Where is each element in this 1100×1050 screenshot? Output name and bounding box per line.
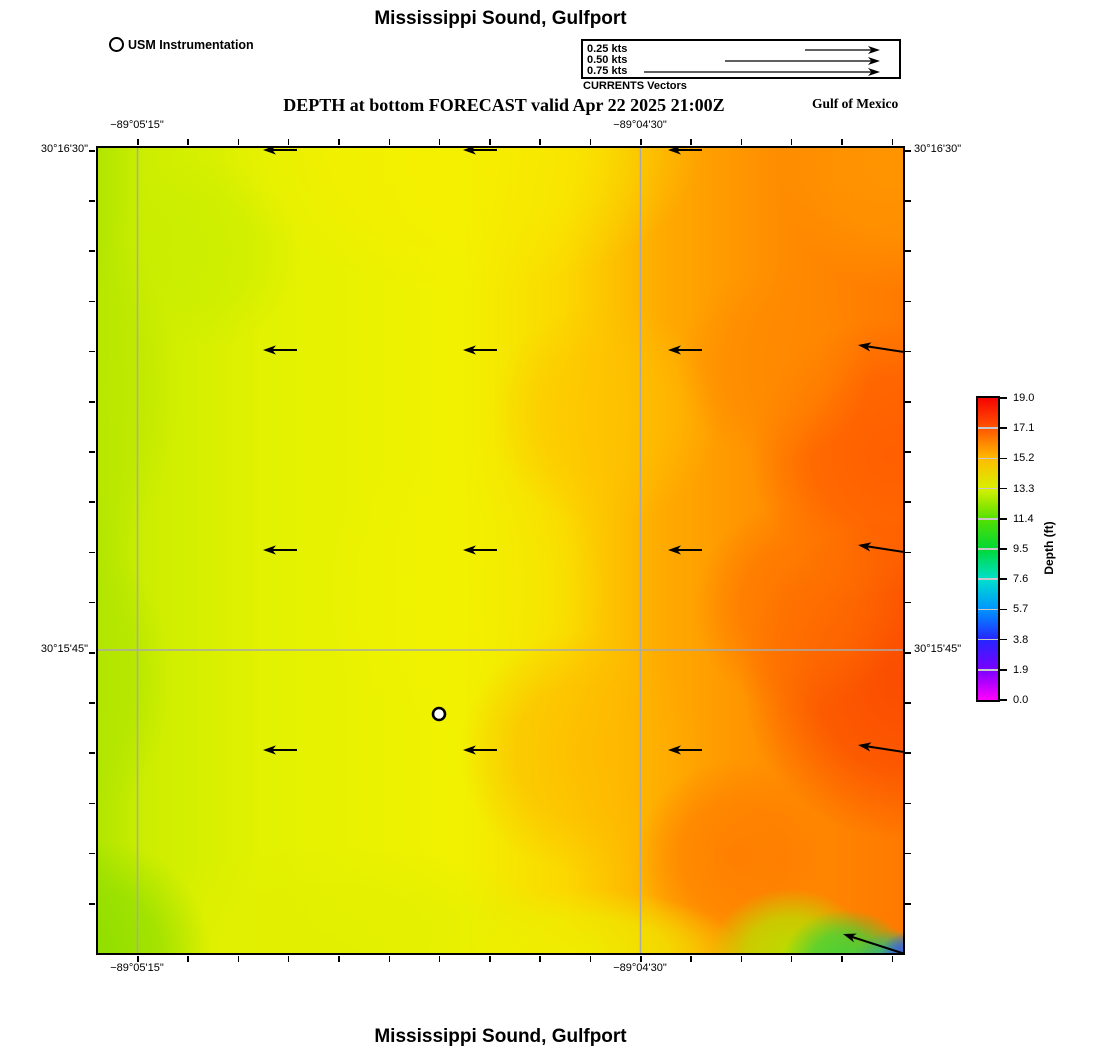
axis-tick	[905, 351, 911, 353]
axis-tick	[389, 139, 391, 145]
axis-tick	[439, 139, 441, 145]
colorbar-tick	[1000, 488, 1007, 490]
colorbar-divider	[978, 548, 998, 550]
map-panel	[96, 146, 905, 955]
colorbar-tick	[1000, 578, 1007, 580]
axis-tick	[905, 803, 911, 805]
axis-tick	[590, 139, 592, 145]
colorbar-title: Depth (ft)	[1042, 503, 1056, 593]
axis-tick	[89, 200, 95, 202]
axis-tick	[690, 956, 692, 962]
colorbar-tick-label: 7.6	[1013, 573, 1028, 585]
axis-tick	[905, 652, 911, 654]
colorbar-tick	[1000, 427, 1007, 429]
colorbar-tick-label: 11.4	[1013, 513, 1034, 525]
axis-label-top-left: −89°05'15"	[97, 119, 177, 131]
axis-label-bottom-left: −89°05'15"	[97, 962, 177, 974]
axis-tick	[338, 139, 340, 145]
axis-label-top-right: −89°04'30"	[600, 119, 680, 131]
station-marker-icon	[109, 37, 124, 52]
axis-tick	[841, 139, 843, 145]
colorbar-divider	[978, 427, 998, 429]
axis-tick	[338, 956, 340, 962]
colorbar-tick	[1000, 609, 1007, 611]
axis-tick	[89, 752, 95, 754]
axis-label-bottom-right: −89°04'30"	[600, 962, 680, 974]
axis-tick	[288, 139, 290, 145]
axis-tick	[89, 803, 95, 805]
axis-tick	[89, 552, 95, 554]
axis-tick	[905, 903, 911, 905]
axis-tick	[89, 250, 95, 252]
axis-tick	[89, 652, 95, 654]
axis-tick	[905, 150, 911, 152]
axis-tick	[137, 956, 139, 962]
axis-tick	[89, 301, 95, 303]
axis-tick	[905, 301, 911, 303]
axis-tick	[238, 139, 240, 145]
station-marker	[433, 708, 445, 720]
axis-tick	[439, 956, 441, 962]
axis-tick	[137, 139, 139, 145]
colorbar-tick-label: 13.3	[1013, 483, 1034, 495]
axis-tick	[905, 752, 911, 754]
colorbar-tick	[1000, 639, 1007, 641]
axis-label-left-top: 30°16'30"	[18, 143, 88, 155]
axis-tick	[187, 956, 189, 962]
axis-tick	[288, 956, 290, 962]
region-label: Gulf of Mexico	[812, 96, 898, 112]
axis-tick	[905, 401, 911, 403]
axis-label-right-top: 30°16'30"	[914, 143, 961, 155]
colorbar-divider	[978, 639, 998, 641]
colorbar-tick-label: 19.0	[1013, 392, 1034, 404]
axis-tick	[892, 139, 894, 145]
colorbar-divider	[978, 458, 998, 460]
colorbar-tick-label: 5.7	[1013, 603, 1028, 615]
axis-tick	[905, 200, 911, 202]
axis-tick	[905, 853, 911, 855]
axis-tick	[89, 401, 95, 403]
axis-tick	[905, 451, 911, 453]
colorbar-tick	[1000, 458, 1007, 460]
footer-title: Mississippi Sound, Gulfport	[98, 1026, 903, 1048]
colorbar-divider	[978, 488, 998, 490]
axis-tick	[905, 501, 911, 503]
axis-tick	[690, 139, 692, 145]
axis-tick	[89, 451, 95, 453]
colorbar-tick	[1000, 548, 1007, 550]
forecast-subtitle: DEPTH at bottom FORECAST valid Apr 22 20…	[98, 95, 910, 116]
axis-label-left-bottom: 30°15'45"	[18, 643, 88, 655]
axis-tick	[89, 702, 95, 704]
axis-tick	[489, 139, 491, 145]
axis-tick	[539, 139, 541, 145]
colorbar-divider	[978, 669, 998, 671]
axis-tick	[640, 956, 642, 962]
colorbar-tick	[1000, 397, 1007, 399]
colorbar-tick-label: 17.1	[1013, 422, 1034, 434]
axis-tick	[741, 956, 743, 962]
colorbar-tick	[1000, 669, 1007, 671]
axis-tick	[89, 150, 95, 152]
axis-tick	[905, 552, 911, 554]
axis-tick	[741, 139, 743, 145]
forecast-figure: Mississippi Sound, Gulfport USM Instrume…	[0, 0, 1100, 1050]
axis-tick	[89, 602, 95, 604]
axis-tick	[590, 956, 592, 962]
colorbar-tick	[1000, 699, 1007, 701]
axis-tick	[89, 351, 95, 353]
colorbar-tick-label: 0.0	[1013, 694, 1028, 706]
axis-tick	[489, 956, 491, 962]
axis-tick	[89, 853, 95, 855]
axis-tick	[791, 956, 793, 962]
vector-legend-box: 0.25 kts 0.50 kts 0.75 kts	[581, 39, 901, 79]
colorbar-divider	[978, 578, 998, 580]
axis-tick	[905, 602, 911, 604]
vector-legend-arrows	[583, 41, 899, 77]
axis-tick	[892, 956, 894, 962]
map-overlay	[98, 148, 903, 953]
colorbar-divider	[978, 518, 998, 520]
colorbar-tick	[1000, 518, 1007, 520]
axis-tick	[89, 903, 95, 905]
axis-tick	[539, 956, 541, 962]
axis-tick	[791, 139, 793, 145]
axis-tick	[905, 250, 911, 252]
colorbar-tick-label: 3.8	[1013, 634, 1028, 646]
axis-tick	[389, 956, 391, 962]
colorbar-divider	[978, 609, 998, 611]
colorbar-tick-label: 1.9	[1013, 664, 1028, 676]
colorbar-tick-label: 15.2	[1013, 452, 1034, 464]
station-legend-label: USM Instrumentation	[128, 38, 254, 52]
vector-legend-caption: CURRENTS Vectors	[583, 80, 687, 92]
axis-tick	[187, 139, 189, 145]
colorbar-tick-label: 9.5	[1013, 543, 1028, 555]
axis-tick	[89, 501, 95, 503]
page-title: Mississippi Sound, Gulfport	[98, 8, 903, 30]
axis-tick	[640, 139, 642, 145]
axis-label-right-bottom: 30°15'45"	[914, 643, 961, 655]
axis-tick	[841, 956, 843, 962]
axis-tick	[905, 702, 911, 704]
colorbar	[976, 396, 1000, 702]
axis-tick	[238, 956, 240, 962]
